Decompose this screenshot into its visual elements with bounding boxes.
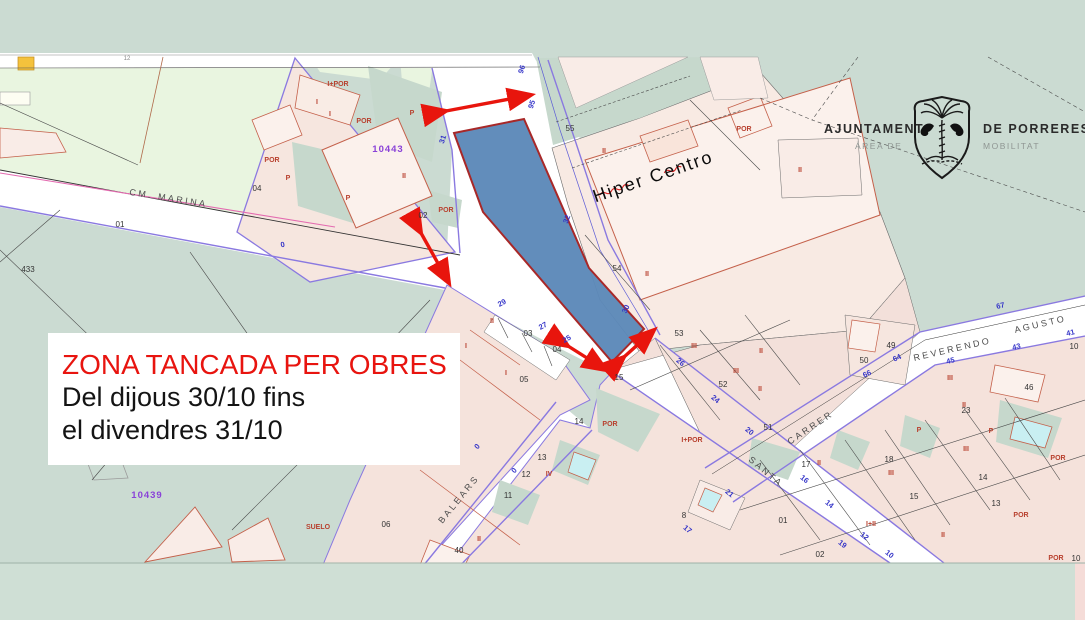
map-label-pnum-22: 04 bbox=[553, 345, 562, 354]
map-label-con-94: II bbox=[477, 536, 481, 543]
map-label-con-96: II bbox=[962, 402, 966, 409]
map-label-pnum-16: 53 bbox=[675, 329, 684, 338]
map-label-con-98: P bbox=[989, 428, 994, 435]
closure-notice-line2: el divendres 31/10 bbox=[62, 414, 460, 447]
map-label-con-82: II bbox=[645, 271, 649, 278]
map-label-pnum-30: 06 bbox=[382, 520, 391, 529]
map-label-pnum-13: 04 bbox=[253, 184, 262, 193]
map-label-con-83: II bbox=[798, 167, 802, 174]
map-label-con-104: POR bbox=[1050, 455, 1065, 462]
map-label-con-93: IV bbox=[546, 471, 553, 478]
map-label-pnum-37: 14 bbox=[979, 473, 988, 482]
map-label-con-73: POR bbox=[438, 207, 453, 214]
map-label-con-76: P bbox=[286, 175, 291, 182]
map-label-con-88: III bbox=[733, 368, 739, 375]
map-label-pnum-40: 46 bbox=[1025, 383, 1034, 392]
map-label-con-77: P bbox=[346, 195, 351, 202]
map-label-con-102: I+II bbox=[866, 521, 876, 528]
map-label-con-70: I+POR bbox=[327, 81, 348, 88]
map-label-pnum-20: 49 bbox=[887, 341, 896, 350]
map-label-pnum-21: 03 bbox=[524, 329, 533, 338]
map-label-con-95: III bbox=[947, 375, 953, 382]
closure-notice: ZONA TANCADA PER OBRES Del dijous 30/10 … bbox=[48, 333, 460, 465]
map-label-con-80: II bbox=[602, 148, 606, 155]
logo-text-de-porreres: DE PORRERES bbox=[983, 122, 1085, 136]
map-label-pnum-36: 15 bbox=[910, 492, 919, 501]
map-label-pnum-18: 51 bbox=[764, 423, 773, 432]
map-label-con-90: II bbox=[758, 386, 762, 393]
map-label-pnum-35: 18 bbox=[885, 455, 894, 464]
map-label-pnum-11: 01 bbox=[116, 220, 125, 229]
map-label-pnum-25: 14 bbox=[575, 417, 584, 426]
map-label-con-97: P bbox=[917, 427, 922, 434]
map-label-pnum-28: 11 bbox=[504, 491, 513, 500]
map-label-pnum-10: 433 bbox=[21, 265, 35, 274]
map-label-tiny-9: 12 bbox=[124, 56, 131, 62]
map-label-pnum-24: 15 bbox=[615, 373, 624, 382]
map-edge-band-pink bbox=[1075, 564, 1085, 620]
map-label-con-87: III bbox=[691, 343, 697, 350]
map-stage: CM. MARINABALEARSSANTACARRERREVERENDOAGU… bbox=[0, 0, 1085, 620]
map-label-con-106: POR bbox=[1048, 555, 1063, 562]
map-label-con-105: POR bbox=[1013, 512, 1028, 519]
map-label-pnum-33: 02 bbox=[816, 550, 825, 559]
closure-notice-title: ZONA TANCADA PER OBRES bbox=[62, 349, 460, 381]
map-label-con-99: III bbox=[963, 446, 969, 453]
map-label-pnum-26: 13 bbox=[538, 453, 547, 462]
map-label-pnum-19: 50 bbox=[860, 356, 869, 365]
map-label-pnum-41: 10 bbox=[1070, 342, 1079, 351]
map-label-pnum-31: 8 bbox=[682, 511, 687, 520]
map-label-con-81: POR bbox=[736, 126, 751, 133]
map-label-pnum-42: 10 bbox=[1072, 554, 1081, 563]
map-label-con-101: III bbox=[888, 470, 894, 477]
map-label-con-100: II bbox=[817, 460, 821, 467]
map-label-pnum-38: 13 bbox=[992, 499, 1001, 508]
map-label-con-107: SUELO bbox=[306, 524, 331, 531]
map-label-con-103: II bbox=[941, 532, 945, 539]
map-label-con-71: POR bbox=[356, 118, 371, 125]
map-label-pnum-14: 55 bbox=[566, 124, 575, 133]
map-label-con-72: POR bbox=[264, 157, 279, 164]
map-label-ref-7: 10443 bbox=[372, 144, 403, 155]
map-label-con-75: P bbox=[410, 110, 415, 117]
map-label-pnum-29: 40 bbox=[455, 546, 464, 555]
map-label-con-91: POR bbox=[602, 421, 617, 428]
map-label-pnum-34: 17 bbox=[802, 460, 811, 469]
closure-notice-line1: Del dijous 30/10 fins bbox=[62, 381, 460, 414]
map-label-con-85: I bbox=[465, 343, 467, 350]
map-label-pnum-23: 05 bbox=[520, 375, 529, 384]
map-label-con-74: II bbox=[402, 173, 406, 180]
map-label-con-84: II bbox=[490, 318, 494, 325]
map-label-con-78: I bbox=[316, 99, 318, 106]
map-label-pnum-17: 52 bbox=[719, 380, 728, 389]
map-label-pnum-32: 01 bbox=[779, 516, 788, 525]
map-label-con-79: I bbox=[329, 111, 331, 118]
map-label-con-86: I bbox=[505, 370, 507, 377]
porreres-shield-icon bbox=[908, 92, 976, 184]
map-label-pnum-27: 12 bbox=[522, 470, 531, 479]
logo-text-area-de: ÀREA DE bbox=[855, 141, 902, 151]
map-label-ref-8: 10439 bbox=[131, 490, 162, 501]
logo-text-mobilitat: MOBILITAT bbox=[983, 141, 1040, 151]
map-label-pnum-12: 02 bbox=[419, 211, 428, 220]
map-label-con-92: I+POR bbox=[681, 437, 702, 444]
map-label-pnum-15: 54 bbox=[613, 264, 622, 273]
map-label-con-89: II bbox=[759, 348, 763, 355]
map-edge-band bbox=[0, 564, 1085, 620]
